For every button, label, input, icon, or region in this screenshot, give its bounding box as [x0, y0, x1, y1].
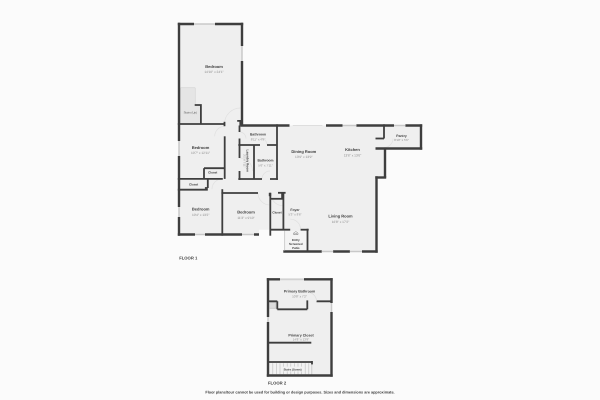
svg-text:5'6" x 7'11": 5'6" x 7'11" — [258, 163, 273, 167]
svg-text:Living Room: Living Room — [328, 213, 353, 218]
svg-text:Closet: Closet — [272, 211, 281, 215]
svg-text:10'7" x 12'11": 10'7" x 12'11" — [191, 151, 210, 155]
svg-text:14'10" x 24'1": 14'10" x 24'1" — [204, 70, 223, 74]
svg-text:13'6" x 13'6": 13'6" x 13'6" — [344, 154, 361, 158]
svg-text:Stairs (Up): Stairs (Up) — [184, 111, 197, 115]
svg-text:FLOOR 1: FLOOR 1 — [179, 255, 198, 260]
svg-text:Dining Room: Dining Room — [291, 149, 316, 154]
svg-text:Bathroom: Bathroom — [250, 133, 266, 137]
svg-text:Bedroom: Bedroom — [205, 64, 223, 69]
svg-text:Floor plans/tour cannot be use: Floor plans/tour cannot be used for buil… — [205, 390, 394, 394]
svg-text:FLOOR 2: FLOOR 2 — [268, 380, 287, 385]
svg-text:Bedroom: Bedroom — [192, 207, 210, 212]
svg-text:Closet: Closet — [208, 171, 217, 175]
svg-text:10'4" x 13'2": 10'4" x 13'2" — [192, 213, 209, 217]
svg-text:Bathroom: Bathroom — [257, 159, 273, 163]
svg-text:3'1" x 7'11": 3'1" x 7'11" — [243, 154, 247, 168]
svg-text:Stairs (Down): Stairs (Down) — [283, 367, 301, 371]
svg-text:Primary Bathroom: Primary Bathroom — [284, 290, 315, 294]
svg-text:8'10" x 5'6": 8'10" x 5'6" — [394, 138, 409, 142]
svg-text:Patio: Patio — [292, 246, 300, 250]
svg-text:16'8" x 17'2": 16'8" x 17'2" — [332, 220, 349, 224]
svg-text:14'8" x 13'9": 14'8" x 13'9" — [293, 337, 309, 341]
svg-text:Kitchen: Kitchen — [345, 147, 360, 152]
svg-text:Foyer: Foyer — [290, 208, 300, 212]
svg-text:Bedroom: Bedroom — [237, 210, 255, 215]
svg-text:Bedroom: Bedroom — [192, 145, 210, 150]
svg-text:5'3" x 8'6": 5'3" x 8'6" — [288, 213, 301, 217]
svg-text:10'8" x 7'2": 10'8" x 7'2" — [292, 295, 307, 299]
svg-text:Closet: Closet — [189, 182, 198, 186]
svg-text:11'3" x 9'10": 11'3" x 9'10" — [237, 216, 254, 220]
svg-text:13'9" x 13'9": 13'9" x 13'9" — [295, 155, 312, 159]
svg-text:8'11" x 4'9": 8'11" x 4'9" — [251, 137, 266, 141]
